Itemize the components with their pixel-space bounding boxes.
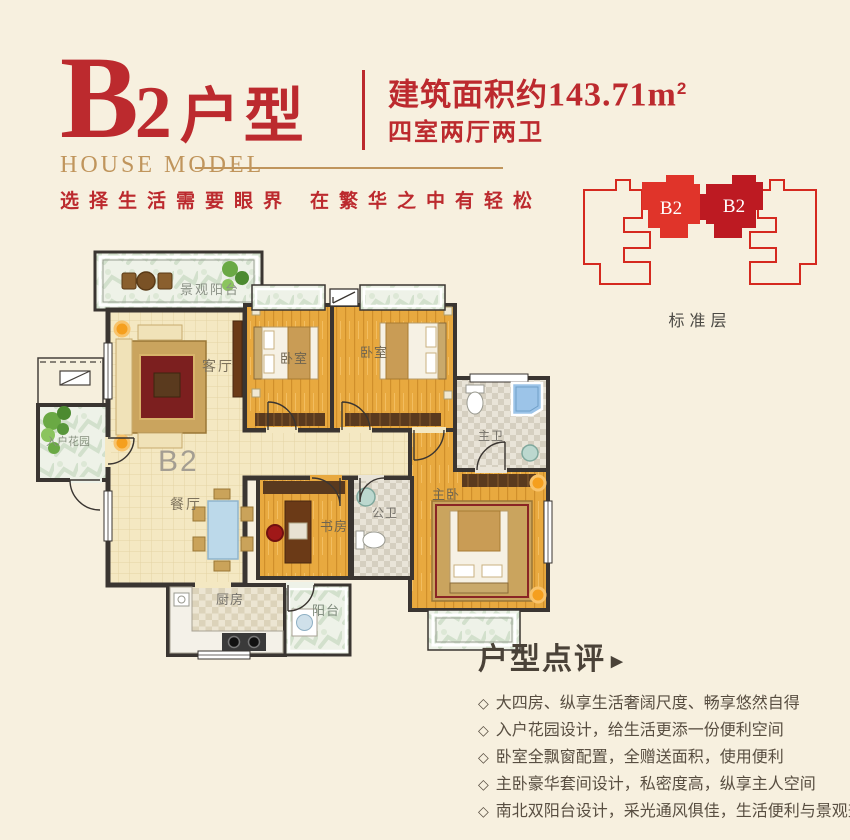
review-item: ◇卧室全飘窗配置，全赠送面积，使用便利 xyxy=(478,744,850,771)
room-balcony-bottom xyxy=(285,585,350,655)
title-number: 2 xyxy=(135,72,172,154)
slogan-right: 在繁华之中有轻松 xyxy=(310,191,542,212)
gold-divider-line xyxy=(195,167,503,169)
floor-plan: 景观阳台 客厅 卧室 卧室 主卫 主卧 餐厅 书房 公卫 厨房 阳台 入户花园 … xyxy=(30,243,565,663)
subtitle-en: HOUSE MODEL xyxy=(60,152,264,179)
room-view-balcony xyxy=(95,252,262,310)
room-master-bathroom xyxy=(455,374,548,470)
arrow-right-icon: ▶ xyxy=(611,654,625,670)
diamond-bullet-icon: ◇ xyxy=(478,749,489,765)
review-item: ◇入户花园设计，给生活更添一份便利空间 xyxy=(478,717,850,744)
room-label-dining: 餐厅 xyxy=(170,496,202,512)
review-section: 户型点评▶ ◇大四房、纵享生活奢阔尺度、畅享悠然自得 ◇入户花园设计，给生活更添… xyxy=(478,634,850,825)
room-label-bedroom-2: 卧室 xyxy=(360,345,388,360)
review-item: ◇南北双阳台设计，采光通风俱佳，生活便利与景观兼得 xyxy=(478,798,850,825)
title-divider xyxy=(362,70,365,150)
bay-window-bedroom-1 xyxy=(252,285,325,310)
slogan-left: 选择生活需要眼界 xyxy=(60,191,292,212)
building-unit-label-left: B2 xyxy=(660,198,682,219)
slogan: 选择生活需要眼界在繁华之中有轻松 xyxy=(60,186,542,213)
area-info: 建筑面积约143.71m2 四室两厅两卫 xyxy=(388,70,687,150)
room-label-bedroom-1: 卧室 xyxy=(280,351,308,366)
review-list: ◇大四房、纵享生活奢阔尺度、畅享悠然自得 ◇入户花园设计，给生活更添一份便利空间… xyxy=(478,690,850,825)
unit-label-b2: B2 xyxy=(158,445,199,478)
review-item: ◇主卧豪华套间设计，私密度高，纵享主人空间 xyxy=(478,771,850,798)
room-bedroom-2 xyxy=(332,305,455,430)
area-line: 建筑面积约143.71m2 xyxy=(388,70,687,114)
bay-window-bedroom-2 xyxy=(360,285,445,310)
room-label-entry-garden: 入户花园 xyxy=(46,434,90,448)
poster-background: B2户型 建筑面积约143.71m2 四室两厅两卫 HOUSE MODEL 选择… xyxy=(0,0,850,840)
room-label-kitchen: 厨房 xyxy=(216,592,244,607)
room-label-living: 客厅 xyxy=(202,358,234,374)
room-label-master-bedroom: 主卧 xyxy=(432,487,460,502)
diamond-bullet-icon: ◇ xyxy=(478,803,489,819)
room-duct-shaft xyxy=(38,358,103,405)
page-title: B2户型 xyxy=(60,48,308,167)
diamond-bullet-icon: ◇ xyxy=(478,776,489,792)
room-label-view-balcony: 景观阳台 xyxy=(180,282,240,297)
building-caption: 标准层 xyxy=(668,312,731,330)
title-letter: B xyxy=(60,32,139,163)
room-label-study: 书房 xyxy=(320,519,348,534)
diamond-bullet-icon: ◇ xyxy=(478,695,489,711)
room-label-shared-bath: 公卫 xyxy=(372,506,398,520)
room-label-balcony-bottom: 阳台 xyxy=(312,603,340,618)
title-suffix: 户型 xyxy=(180,84,308,150)
review-item: ◇大四房、纵享生活奢阔尺度、畅享悠然自得 xyxy=(478,690,850,717)
room-label-master-bath: 主卫 xyxy=(478,429,504,443)
review-heading: 户型点评▶ xyxy=(478,634,850,678)
layout-line: 四室两厅两卫 xyxy=(388,116,687,150)
diamond-bullet-icon: ◇ xyxy=(478,722,489,738)
flue-symbol xyxy=(330,289,358,306)
building-wing-left xyxy=(584,180,650,284)
building-location-diagram: B2 B2 标准层 xyxy=(570,166,820,336)
building-unit-label-right: B2 xyxy=(723,196,745,217)
